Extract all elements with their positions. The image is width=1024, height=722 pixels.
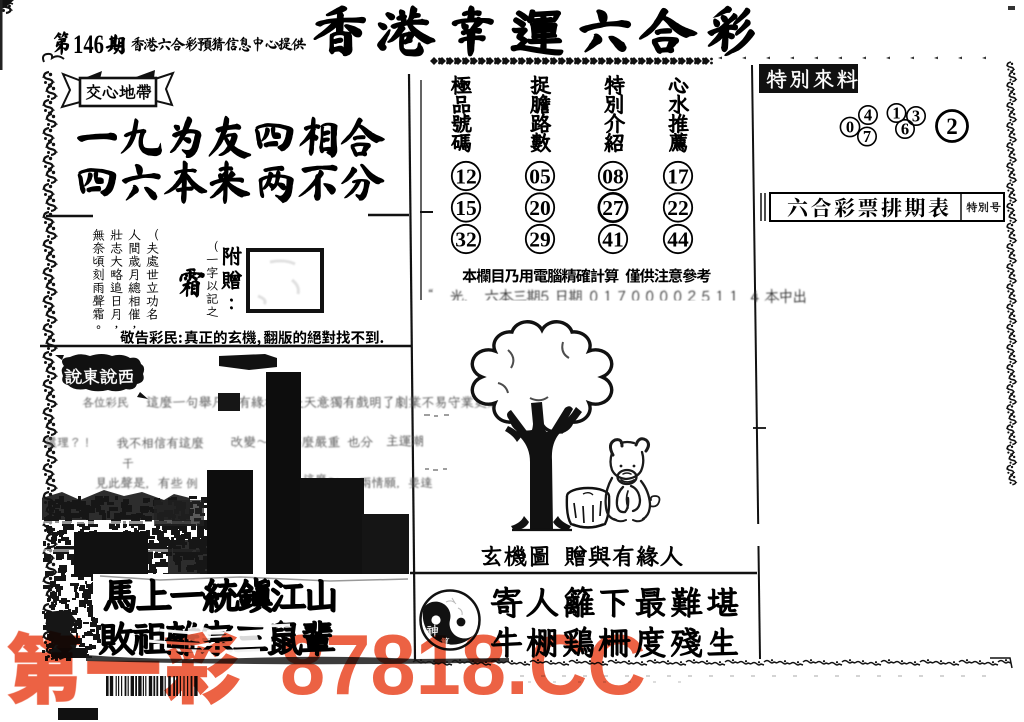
- svg-text:0: 0: [846, 118, 854, 137]
- svg-text:29: 29: [529, 228, 551, 252]
- svg-text:44: 44: [667, 228, 689, 252]
- svg-text:146: 146: [73, 30, 104, 59]
- svg-text:41: 41: [602, 228, 624, 252]
- svg-text:87818.CC: 87818.CC: [280, 618, 646, 713]
- svg-text:08: 08: [602, 165, 624, 189]
- svg-text:2: 2: [946, 114, 958, 139]
- svg-text:15: 15: [455, 196, 477, 220]
- svg-text:20: 20: [529, 196, 551, 220]
- svg-text:12: 12: [455, 165, 477, 189]
- svg-text:22: 22: [667, 196, 689, 220]
- svg-text:1: 1: [892, 104, 900, 123]
- svg-text:27: 27: [602, 196, 624, 220]
- svg-text:4: 4: [864, 106, 872, 125]
- svg-text:7: 7: [863, 127, 871, 146]
- svg-text:6: 6: [901, 120, 909, 139]
- svg-text:05: 05: [529, 165, 551, 189]
- svg-text:17: 17: [667, 165, 689, 189]
- svg-text:3: 3: [912, 107, 920, 126]
- svg-text:32: 32: [455, 228, 477, 252]
